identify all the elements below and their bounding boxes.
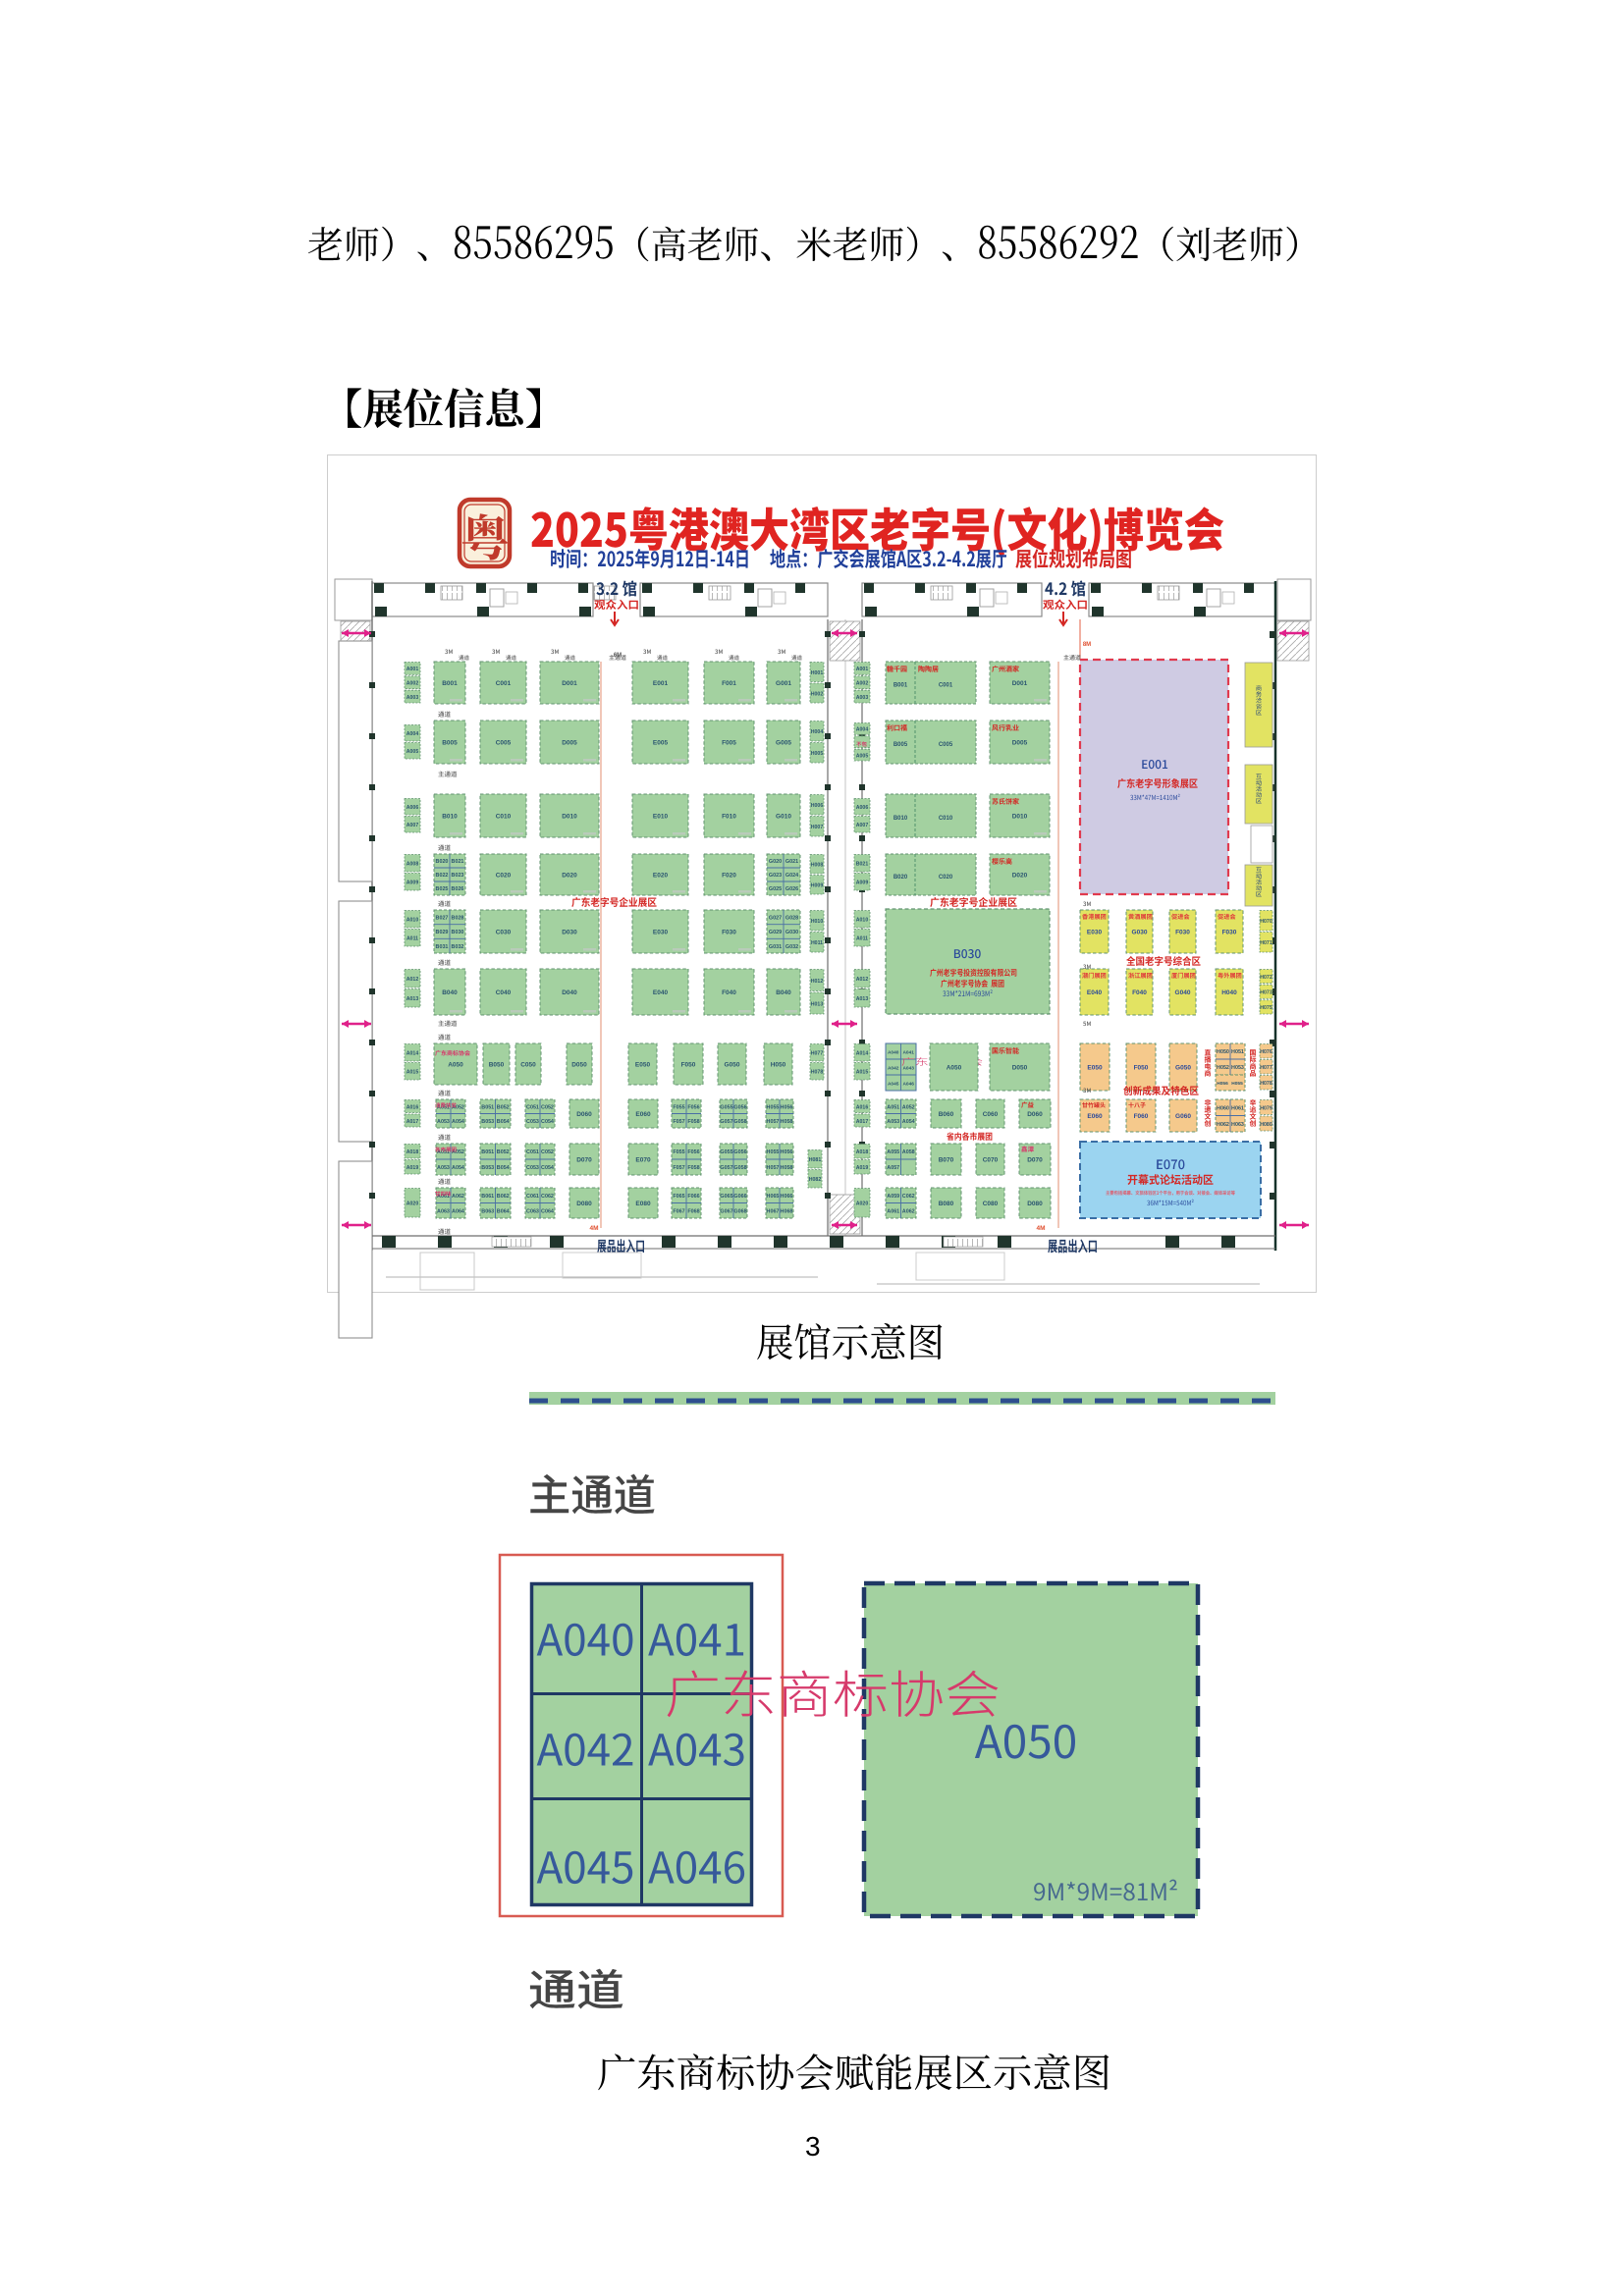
svg-text:G030: G030	[1132, 930, 1148, 936]
svg-text:B005: B005	[442, 740, 458, 747]
svg-text:A012: A012	[856, 977, 869, 983]
svg-text:C064: C064	[541, 1208, 554, 1214]
svg-text:H058: H058	[781, 1119, 793, 1125]
svg-text:A007: A007	[406, 823, 419, 828]
svg-text:A017: A017	[406, 1119, 419, 1125]
svg-text:B051: B051	[481, 1104, 494, 1110]
svg-text:G029: G029	[769, 930, 782, 935]
svg-text:A020: A020	[856, 1201, 869, 1207]
svg-text:G055: G055	[720, 1104, 732, 1110]
svg-text:8M: 8M	[1083, 642, 1091, 648]
svg-text:A018: A018	[406, 1149, 419, 1155]
svg-text:D005: D005	[562, 740, 577, 747]
svg-text:G040: G040	[1175, 989, 1191, 996]
svg-text:A003: A003	[856, 695, 869, 701]
svg-text:G056: G056	[733, 1149, 746, 1155]
svg-text:D050: D050	[571, 1062, 587, 1069]
svg-text:A002: A002	[856, 681, 869, 687]
svg-text:C060: C060	[983, 1111, 999, 1118]
svg-text:F056: F056	[687, 1149, 699, 1155]
svg-text:F030: F030	[1222, 930, 1237, 936]
svg-text:H075: H075	[1260, 1005, 1272, 1011]
svg-text:G010: G010	[776, 814, 791, 821]
svg-text:A054: A054	[452, 1119, 464, 1125]
svg-text:G050: G050	[1175, 1065, 1191, 1072]
svg-text:A011: A011	[406, 936, 418, 942]
svg-text:F010: F010	[722, 814, 736, 821]
svg-text:3: 3	[805, 2131, 821, 2162]
svg-text:G057: G057	[720, 1119, 732, 1125]
svg-text:H052: H052	[1217, 1065, 1229, 1071]
svg-text:4M: 4M	[589, 1225, 598, 1232]
svg-text:H002: H002	[811, 691, 824, 697]
svg-text:A054: A054	[902, 1119, 915, 1125]
svg-text:A004: A004	[406, 731, 419, 737]
svg-text:E040: E040	[1087, 989, 1103, 996]
svg-text:E001: E001	[653, 680, 669, 687]
svg-text:C001: C001	[939, 683, 953, 689]
svg-text:H007: H007	[811, 825, 824, 830]
svg-text:A010: A010	[406, 918, 419, 924]
svg-text:C053: C053	[526, 1165, 539, 1171]
svg-text:B070: B070	[939, 1157, 954, 1164]
svg-text:D001: D001	[562, 680, 577, 687]
svg-text:C005: C005	[496, 740, 512, 747]
svg-text:A002: A002	[406, 681, 419, 687]
svg-text:A019: A019	[856, 1165, 869, 1171]
svg-text:H061: H061	[1231, 1105, 1244, 1111]
svg-text:G068: G068	[733, 1208, 746, 1214]
svg-text:G057: G057	[720, 1165, 732, 1171]
svg-text:A064: A064	[452, 1208, 464, 1214]
svg-text:G058: G058	[733, 1165, 746, 1171]
svg-text:D080: D080	[576, 1201, 592, 1207]
svg-text:B021: B021	[452, 859, 464, 865]
svg-text:F058: F058	[687, 1165, 699, 1171]
svg-text:G066: G066	[733, 1194, 746, 1200]
svg-text:C030: C030	[496, 930, 512, 936]
svg-text:H067: H067	[767, 1208, 780, 1214]
svg-text:H063: H063	[1231, 1122, 1244, 1128]
svg-text:F055: F055	[673, 1149, 684, 1155]
svg-text:B062: B062	[497, 1194, 510, 1200]
svg-text:C001: C001	[496, 680, 512, 687]
svg-text:E050: E050	[635, 1062, 651, 1069]
svg-text:H073: H073	[1260, 990, 1272, 996]
svg-text:C054: C054	[541, 1119, 554, 1125]
svg-text:A003: A003	[406, 695, 419, 701]
svg-text:B028: B028	[452, 916, 464, 922]
svg-text:E030: E030	[1087, 930, 1103, 936]
svg-text:G026: G026	[785, 886, 798, 892]
svg-text:A041: A041	[902, 1050, 914, 1056]
svg-text:F030: F030	[722, 930, 736, 936]
svg-text:A001: A001	[856, 667, 869, 672]
svg-text:A004: A004	[856, 727, 869, 733]
svg-text:B080: B080	[939, 1201, 954, 1207]
svg-text:B005: B005	[893, 742, 908, 748]
svg-text:B022: B022	[436, 873, 449, 879]
svg-text:A053: A053	[887, 1119, 899, 1125]
svg-text:H068: H068	[781, 1208, 793, 1214]
svg-text:H080: H080	[1260, 1122, 1272, 1128]
svg-text:H072: H072	[1260, 975, 1272, 981]
svg-text:D020: D020	[562, 873, 577, 880]
svg-text:B001: B001	[893, 683, 908, 689]
svg-text:G025: G025	[769, 886, 782, 892]
svg-text:H005: H005	[811, 751, 824, 757]
svg-text:H050: H050	[771, 1062, 786, 1069]
svg-text:C051: C051	[526, 1104, 539, 1110]
svg-text:A015: A015	[406, 1070, 419, 1076]
svg-text:E040: E040	[653, 989, 669, 996]
svg-text:C062: C062	[541, 1194, 554, 1200]
svg-text:H057: H057	[767, 1119, 780, 1125]
svg-text:G027: G027	[769, 916, 782, 922]
svg-text:H062: H062	[1217, 1122, 1229, 1128]
svg-text:E020: E020	[653, 873, 669, 880]
svg-text:F067: F067	[673, 1208, 684, 1214]
svg-text:C010: C010	[496, 814, 512, 821]
svg-text:A050: A050	[448, 1062, 463, 1069]
svg-text:B021: B021	[856, 862, 869, 868]
svg-text:A006: A006	[406, 805, 419, 811]
svg-text:A006: A006	[856, 805, 869, 811]
svg-text:A051: A051	[887, 1104, 899, 1110]
svg-text:B027: B027	[436, 916, 449, 922]
svg-text:D010: D010	[1012, 814, 1028, 821]
svg-text:E030: E030	[653, 930, 669, 936]
svg-text:A018: A018	[856, 1149, 869, 1155]
svg-text:B010: B010	[442, 814, 458, 821]
svg-text:B053: B053	[481, 1165, 494, 1171]
svg-text:H079: H079	[1260, 1105, 1272, 1111]
svg-text:H060: H060	[1217, 1105, 1229, 1111]
svg-text:H078: H078	[1260, 1081, 1272, 1087]
svg-text:H011: H011	[811, 940, 823, 946]
svg-text:B060: B060	[939, 1111, 954, 1118]
svg-text:D060: D060	[1027, 1111, 1043, 1118]
svg-text:A010: A010	[856, 918, 869, 924]
svg-text:C063: C063	[526, 1208, 539, 1214]
svg-text:H057: H057	[767, 1165, 780, 1171]
svg-text:A062: A062	[902, 1208, 915, 1214]
svg-text:4M: 4M	[1036, 1225, 1045, 1232]
svg-text:A042: A042	[888, 1066, 899, 1072]
svg-text:H056: H056	[781, 1149, 793, 1155]
svg-text:A052: A052	[902, 1104, 915, 1110]
svg-text:A012: A012	[406, 977, 419, 983]
svg-text:H070: H070	[1260, 919, 1272, 925]
svg-text:C040: C040	[496, 989, 512, 996]
svg-text:H050: H050	[1217, 1049, 1229, 1055]
svg-text:H053: H053	[1231, 1065, 1244, 1071]
svg-text:G021: G021	[785, 859, 798, 865]
svg-text:A050: A050	[947, 1065, 962, 1072]
svg-text:C020: C020	[939, 875, 953, 881]
svg-text:C020: C020	[496, 873, 512, 880]
svg-text:F050: F050	[681, 1062, 696, 1069]
svg-text:G050: G050	[725, 1062, 740, 1069]
svg-text:C050: C050	[520, 1062, 536, 1069]
svg-text:F057: F057	[673, 1165, 684, 1171]
svg-text:F040: F040	[1132, 989, 1147, 996]
svg-text:D020: D020	[1012, 873, 1028, 880]
svg-text:B051: B051	[481, 1149, 494, 1155]
svg-text:B029: B029	[436, 930, 449, 935]
svg-text:H056: H056	[1217, 1081, 1228, 1087]
svg-text:C061: C061	[526, 1194, 539, 1200]
svg-text:A016: A016	[406, 1104, 419, 1110]
svg-text:F065: F065	[673, 1194, 684, 1200]
svg-text:C052: C052	[541, 1104, 554, 1110]
svg-text:H082: H082	[809, 1177, 822, 1183]
svg-text:H004: H004	[811, 729, 824, 735]
svg-text:A014: A014	[856, 1051, 869, 1057]
svg-text:A016: A016	[856, 1104, 869, 1110]
svg-text:H040: H040	[1221, 989, 1237, 996]
svg-text:E050: E050	[1087, 1065, 1103, 1072]
svg-text:F020: F020	[722, 873, 736, 880]
svg-text:D050: D050	[1012, 1065, 1028, 1072]
svg-text:F001: F001	[722, 680, 736, 687]
svg-text:H071: H071	[1260, 940, 1272, 946]
svg-text:C051: C051	[526, 1149, 539, 1155]
svg-text:A007: A007	[856, 823, 869, 828]
svg-text:H010: H010	[811, 919, 824, 925]
svg-text:B061: B061	[481, 1194, 494, 1200]
svg-text:H001: H001	[811, 670, 824, 676]
svg-text:G001: G001	[776, 680, 791, 687]
svg-text:H076: H076	[1260, 1049, 1272, 1055]
svg-text:G032: G032	[785, 944, 798, 950]
svg-text:B052: B052	[497, 1104, 510, 1110]
svg-text:F005: F005	[722, 740, 736, 747]
svg-text:A009: A009	[406, 881, 419, 886]
svg-text:C052: C052	[541, 1149, 554, 1155]
svg-text:D070: D070	[1027, 1157, 1043, 1164]
svg-text:D010: D010	[562, 814, 577, 821]
svg-text:E010: E010	[653, 814, 669, 821]
svg-text:C005: C005	[939, 742, 953, 748]
svg-text:H056: H056	[781, 1104, 793, 1110]
svg-text:D005: D005	[1012, 740, 1028, 747]
svg-text:A063: A063	[437, 1208, 450, 1214]
svg-text:E060: E060	[635, 1111, 651, 1118]
svg-text:B064: B064	[497, 1208, 510, 1214]
svg-text:B023: B023	[452, 873, 464, 879]
svg-text:A020: A020	[406, 1201, 419, 1207]
svg-text:A061: A061	[887, 1208, 899, 1214]
svg-text:A053: A053	[437, 1119, 450, 1125]
svg-text:B020: B020	[893, 875, 908, 881]
svg-text:B054: B054	[497, 1119, 510, 1125]
svg-text:D030: D030	[562, 930, 577, 936]
svg-text:G055: G055	[720, 1149, 732, 1155]
svg-text:H051: H051	[1231, 1049, 1244, 1055]
svg-text:C010: C010	[939, 816, 953, 822]
svg-text:A052: A052	[452, 1104, 464, 1110]
svg-text:E005: E005	[653, 740, 669, 747]
svg-text:A017: A017	[856, 1119, 869, 1125]
svg-text:G028: G028	[785, 916, 798, 922]
svg-text:F068: F068	[687, 1208, 699, 1214]
svg-text:B040: B040	[776, 989, 791, 996]
svg-text:G030: G030	[785, 930, 798, 935]
svg-text:C080: C080	[983, 1201, 999, 1207]
svg-text:G056: G056	[733, 1104, 746, 1110]
svg-text:G024: G024	[785, 873, 798, 879]
svg-text:H066: H066	[781, 1194, 793, 1200]
svg-text:A005: A005	[406, 749, 419, 755]
svg-text:F050: F050	[1134, 1065, 1149, 1072]
svg-text:B030: B030	[452, 930, 464, 935]
svg-text:F056: F056	[687, 1104, 699, 1110]
svg-text:B001: B001	[442, 680, 458, 687]
svg-text:D070: D070	[576, 1157, 592, 1164]
svg-text:A005: A005	[856, 753, 869, 759]
svg-text:D001: D001	[1012, 680, 1028, 687]
svg-text:E060: E060	[1087, 1113, 1103, 1120]
svg-text:A043: A043	[902, 1066, 914, 1072]
svg-text:E070: E070	[635, 1157, 651, 1164]
svg-text:B063: B063	[481, 1208, 494, 1214]
svg-text:A013: A013	[406, 996, 419, 1002]
svg-text:B052: B052	[497, 1149, 510, 1155]
svg-text:H055: H055	[767, 1149, 780, 1155]
svg-text:A046: A046	[902, 1082, 914, 1088]
svg-text:A013: A013	[856, 996, 869, 1002]
svg-text:F058: F058	[687, 1119, 699, 1125]
svg-text:A062: A062	[452, 1194, 464, 1200]
svg-text:G031: G031	[769, 944, 782, 950]
svg-text:C062: C062	[902, 1194, 915, 1200]
svg-text:H065: H065	[767, 1194, 780, 1200]
svg-text:G023: G023	[769, 873, 782, 879]
svg-text:A011: A011	[856, 936, 868, 942]
svg-text:B010: B010	[893, 816, 908, 822]
svg-text:A040: A040	[888, 1050, 899, 1056]
svg-text:H055: H055	[1231, 1081, 1243, 1087]
svg-text:F055: F055	[673, 1104, 684, 1110]
svg-text:C053: C053	[526, 1119, 539, 1125]
svg-text:H077: H077	[1260, 1065, 1272, 1071]
svg-text:F040: F040	[722, 989, 736, 996]
svg-text:G060: G060	[1175, 1113, 1191, 1120]
svg-text:A008: A008	[406, 862, 419, 868]
svg-text:H008: H008	[811, 863, 824, 869]
svg-text:B020: B020	[436, 859, 449, 865]
svg-text:G067: G067	[720, 1208, 732, 1214]
svg-text:H078: H078	[811, 1070, 824, 1076]
svg-text:A055: A055	[887, 1149, 899, 1155]
svg-text:B026: B026	[452, 886, 464, 892]
svg-text:H013: H013	[811, 1001, 824, 1007]
svg-text:G065: G065	[720, 1194, 732, 1200]
svg-text:A053: A053	[437, 1165, 450, 1171]
svg-text:D080: D080	[1027, 1201, 1043, 1207]
svg-text:E080: E080	[635, 1201, 651, 1207]
svg-text:D040: D040	[562, 989, 577, 996]
svg-text:B040: B040	[442, 989, 458, 996]
svg-text:B054: B054	[497, 1165, 510, 1171]
svg-text:H081: H081	[809, 1157, 822, 1163]
svg-text:A009: A009	[856, 881, 869, 886]
svg-text:A054: A054	[452, 1165, 464, 1171]
svg-text:B031: B031	[436, 944, 449, 950]
svg-text:A015: A015	[856, 1070, 869, 1076]
svg-text:G005: G005	[776, 740, 791, 747]
svg-text:H077: H077	[811, 1051, 824, 1057]
svg-text:A001: A001	[406, 667, 419, 672]
svg-text:B053: B053	[481, 1119, 494, 1125]
svg-text:A019: A019	[406, 1165, 419, 1171]
svg-text:F030: F030	[1175, 930, 1190, 936]
svg-text:D060: D060	[576, 1111, 592, 1118]
svg-text:C054: C054	[541, 1165, 554, 1171]
svg-text:H006: H006	[811, 803, 824, 809]
svg-text:H055: H055	[767, 1104, 780, 1110]
svg-text:F066: F066	[687, 1194, 699, 1200]
svg-text:F060: F060	[1134, 1113, 1149, 1120]
svg-text:G058: G058	[733, 1119, 746, 1125]
svg-text:H009: H009	[811, 883, 824, 889]
svg-text:G020: G020	[769, 859, 782, 865]
svg-text:B050: B050	[489, 1062, 505, 1069]
svg-text:F057: F057	[673, 1119, 684, 1125]
svg-text:A059: A059	[887, 1194, 899, 1200]
svg-text:A045: A045	[888, 1082, 899, 1088]
svg-text:A057: A057	[887, 1165, 899, 1171]
svg-text:H058: H058	[781, 1165, 793, 1171]
svg-text:A014: A014	[406, 1051, 419, 1057]
svg-text:B025: B025	[436, 886, 449, 892]
svg-text:C070: C070	[983, 1157, 999, 1164]
svg-text:A058: A058	[902, 1149, 915, 1155]
svg-text:H012: H012	[811, 979, 824, 985]
svg-text:B032: B032	[452, 944, 464, 950]
